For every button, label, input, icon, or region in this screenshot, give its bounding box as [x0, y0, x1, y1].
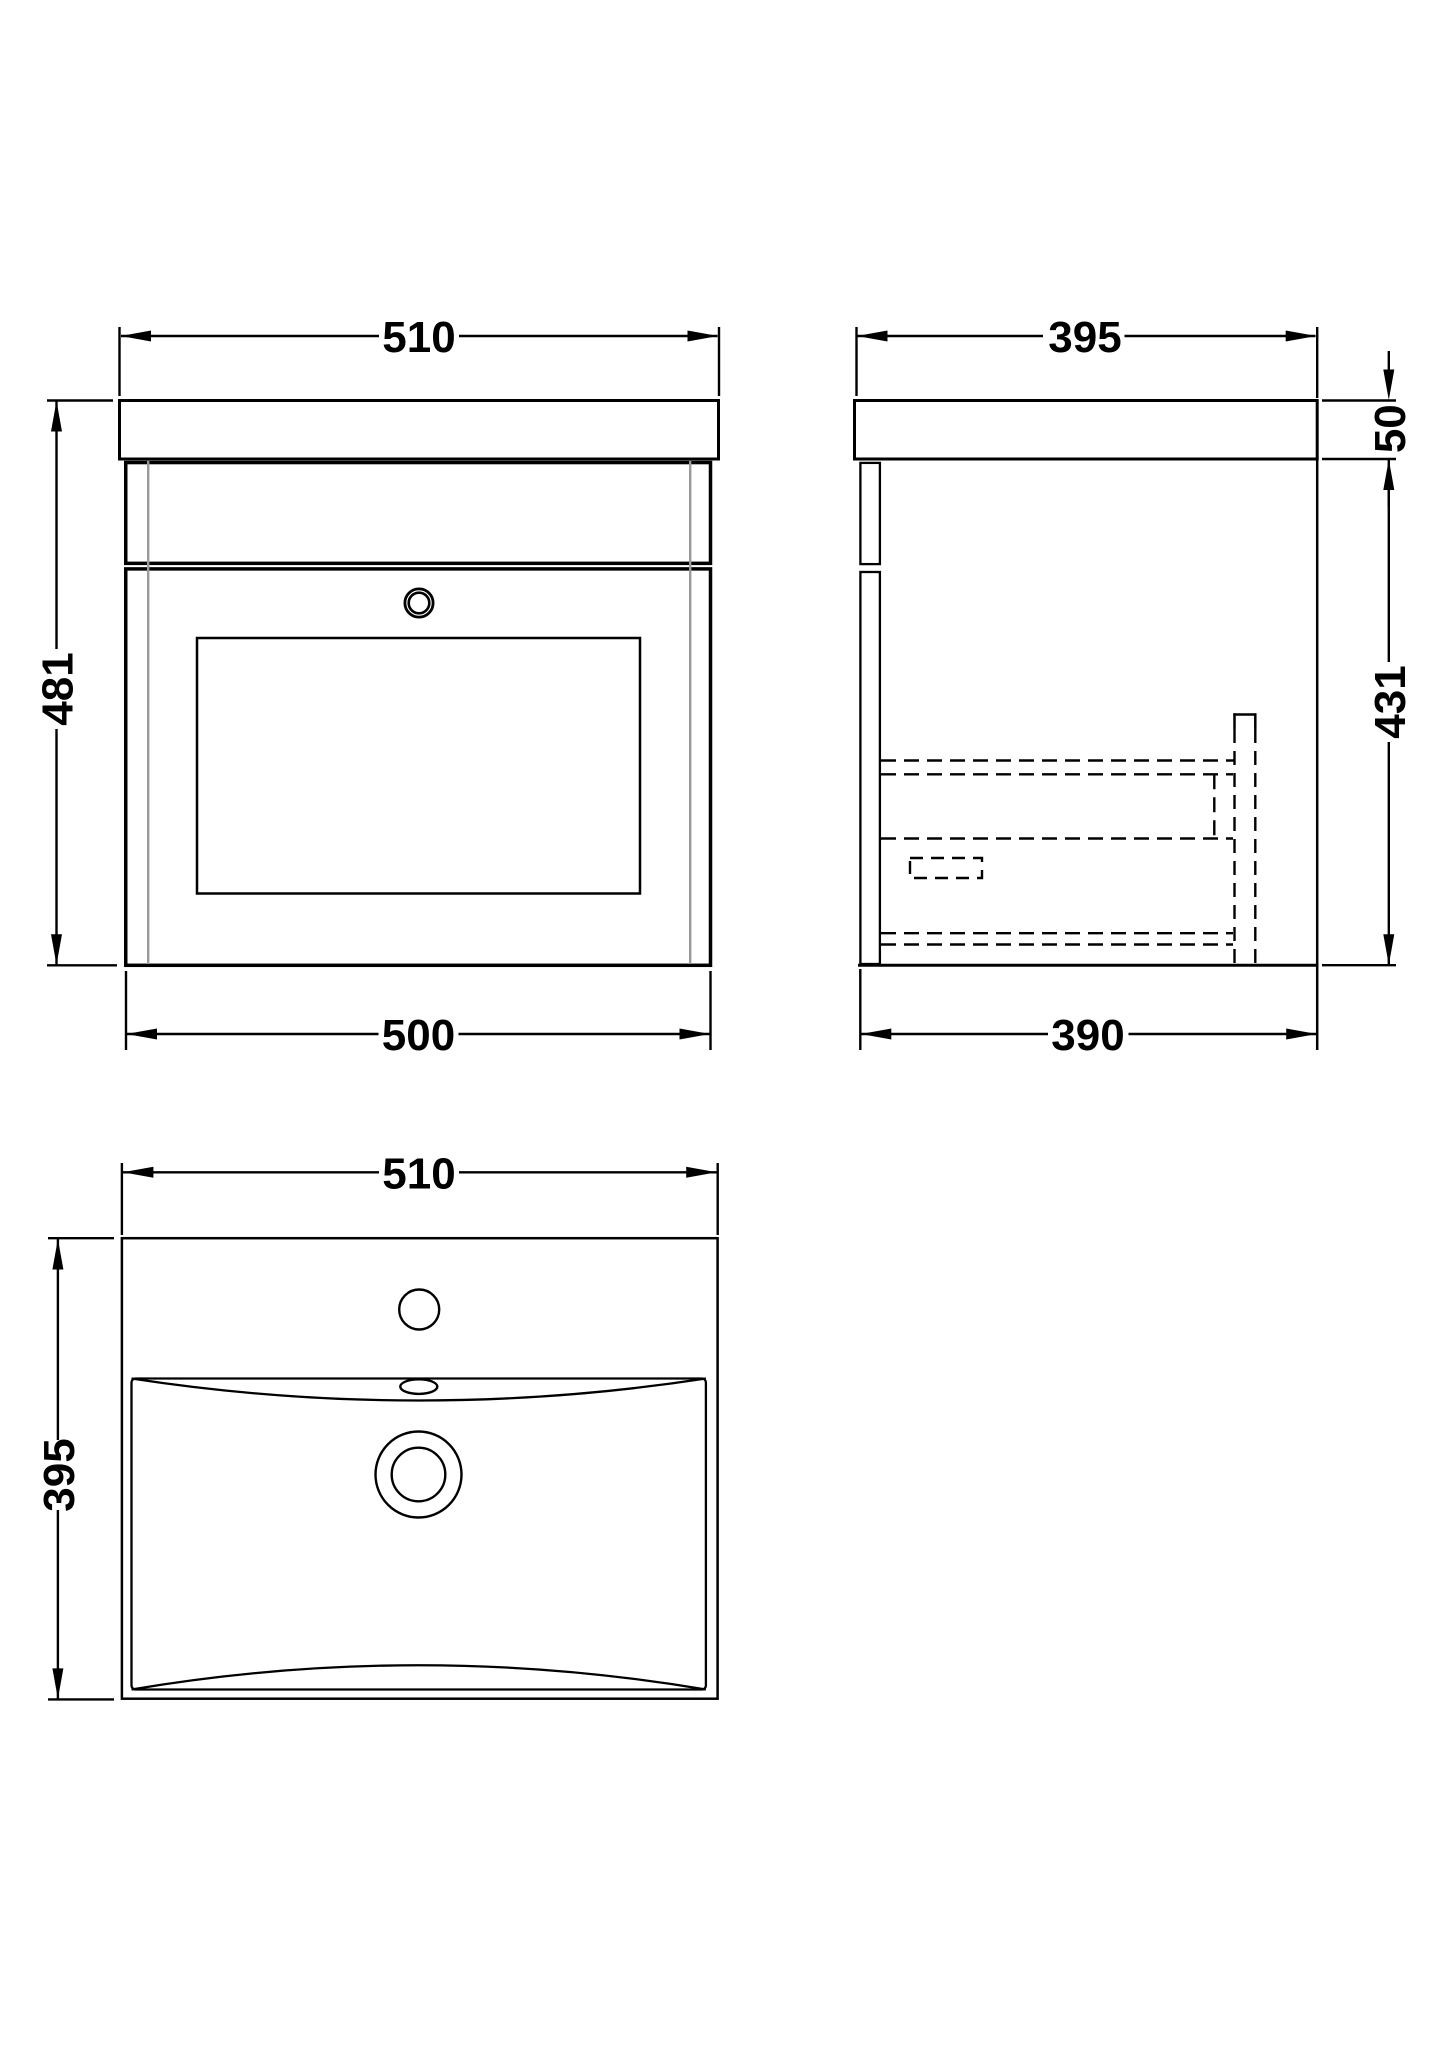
svg-text:510: 510 — [382, 313, 455, 362]
svg-text:390: 390 — [1051, 1011, 1124, 1060]
svg-text:500: 500 — [382, 1011, 455, 1060]
svg-text:481: 481 — [34, 652, 83, 725]
svg-text:431: 431 — [1366, 665, 1415, 738]
svg-text:510: 510 — [382, 1149, 455, 1198]
svg-text:50: 50 — [1366, 404, 1415, 453]
svg-text:395: 395 — [1048, 313, 1121, 362]
svg-text:395: 395 — [35, 1438, 84, 1511]
